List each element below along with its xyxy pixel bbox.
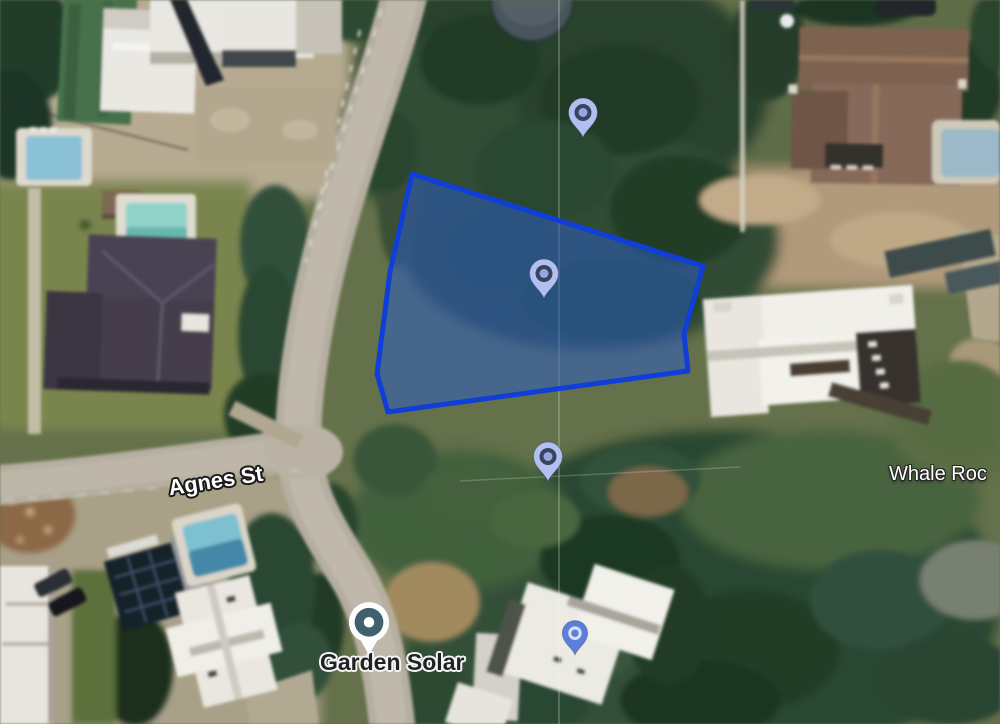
map-overlay bbox=[0, 0, 1000, 724]
map-pin-parcel[interactable] bbox=[528, 258, 560, 300]
map-pin-bottom[interactable] bbox=[561, 618, 589, 658]
poi-marker-dot bbox=[364, 617, 375, 628]
location-pin-icon bbox=[561, 618, 589, 658]
location-pin-icon bbox=[567, 97, 599, 139]
location-pin-icon bbox=[528, 258, 560, 300]
map-pin-north[interactable] bbox=[567, 97, 599, 139]
map-canvas[interactable]: Agnes St Whale Roc Garden Solar bbox=[0, 0, 1000, 724]
location-pin-icon bbox=[532, 441, 564, 483]
map-pin-south[interactable] bbox=[532, 441, 564, 483]
cadastral-line-horizontal bbox=[460, 467, 740, 481]
poi-marker-garden-solar[interactable] bbox=[346, 601, 392, 656]
